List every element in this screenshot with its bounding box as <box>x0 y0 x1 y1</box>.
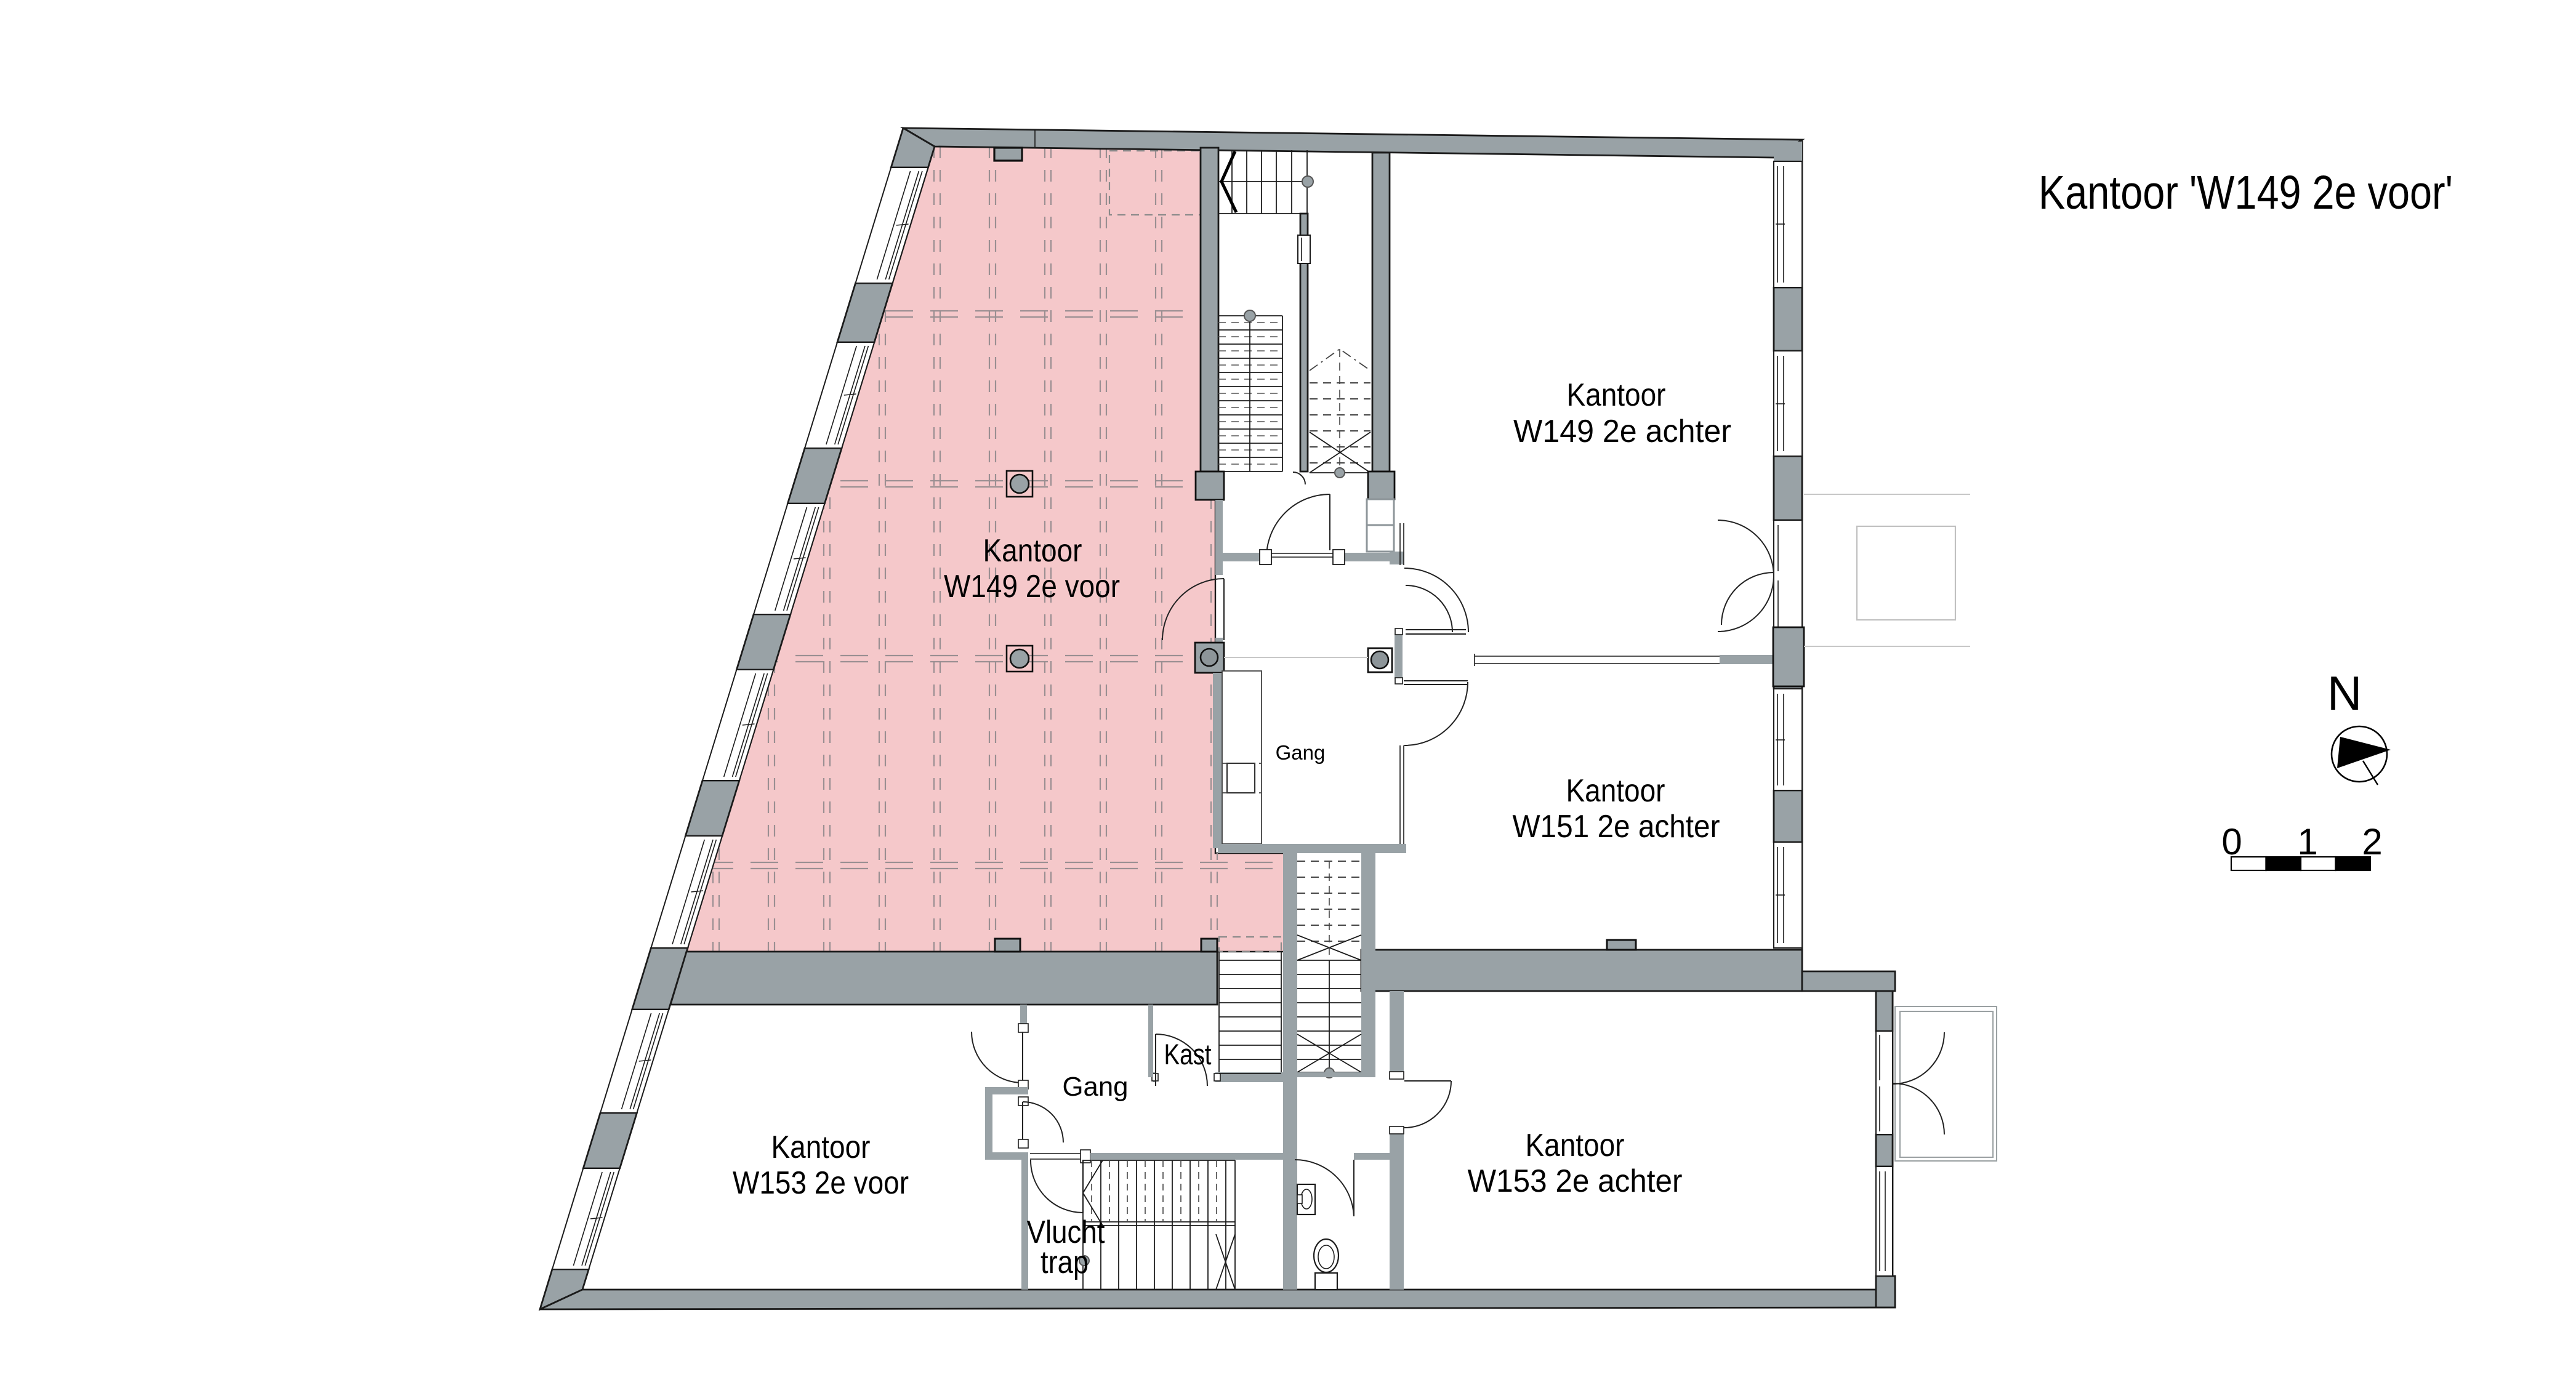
svg-text:Kantoor: Kantoor <box>1567 377 1666 413</box>
svg-text:2: 2 <box>2362 821 2382 862</box>
svg-text:0: 0 <box>2221 821 2242 862</box>
svg-text:Kantoor 'W149 2e voor': Kantoor 'W149 2e voor' <box>2039 166 2453 219</box>
svg-text:W149 2e achter: W149 2e achter <box>1513 414 1731 449</box>
svg-text:trap: trap <box>1040 1245 1089 1280</box>
svg-text:Kantoor: Kantoor <box>983 533 1082 569</box>
svg-text:Kast: Kast <box>1164 1038 1212 1070</box>
svg-text:Kantoor: Kantoor <box>1526 1128 1625 1163</box>
svg-text:1: 1 <box>2297 821 2317 862</box>
svg-text:W153 2e voor: W153 2e voor <box>733 1165 909 1201</box>
svg-text:W151 2e achter: W151 2e achter <box>1513 809 1720 845</box>
svg-text:W153 2e achter: W153 2e achter <box>1468 1163 1683 1199</box>
svg-text:Gang: Gang <box>1276 741 1326 764</box>
svg-text:N: N <box>2327 666 2362 720</box>
svg-text:Gang: Gang <box>1063 1072 1129 1102</box>
svg-text:Kantoor: Kantoor <box>771 1130 871 1165</box>
svg-text:Kantoor: Kantoor <box>1566 773 1665 809</box>
svg-text:W149 2e voor: W149 2e voor <box>944 569 1120 604</box>
